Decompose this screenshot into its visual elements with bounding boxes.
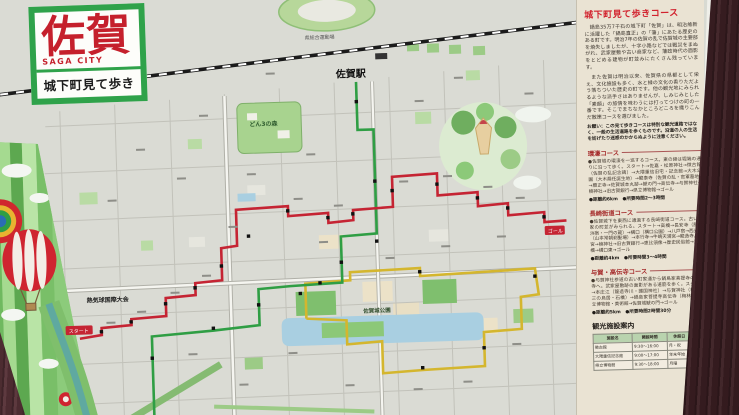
course-kango: 環濠コース ●佐賀城の環濠を一巡するコース。東の縁は堀端の通りに沿って歩く。スタ… xyxy=(588,146,702,202)
course-yoka-desc: ●与賀神社参道の古い町家通から鍋島家菩提寺の高伝寺へ。武家屋敷跡の面影がある道筋… xyxy=(591,276,704,308)
course-nagasaki-desc: ●佐賀城下を東西に通過する長崎街道コース。古い商家の町並がみられる。スタート→高… xyxy=(590,217,704,255)
intro-paragraph-1: 鍋島35万7千石の城下町「佐賀」は、明治維新に活躍した「鍋島直正」の「藩」にあた… xyxy=(584,22,698,71)
facility-table-title: 観光施設案内 xyxy=(592,319,704,332)
goal-label: ゴール xyxy=(548,228,563,235)
stadium-label: 県総合運動場 xyxy=(304,34,334,42)
station-label: 佐賀駅 xyxy=(335,67,367,81)
start-label: スタート xyxy=(69,327,89,335)
signboard-photo: 佐賀駅 県総合運動場 どん3の森 xyxy=(0,0,739,415)
start-tag: スタート xyxy=(66,325,93,335)
panel-heading: 城下町見て歩きコース xyxy=(584,5,697,21)
info-panel: 城下町見て歩きコース 鍋島35万7千石の城下町「佐賀」は、明治維新に活躍した「鍋… xyxy=(576,0,704,415)
balloon-event-label: 熱気球国際大会 xyxy=(87,295,130,304)
map-tagline: 城下町見て歩き xyxy=(37,66,142,95)
course-nagasaki-kaido: 長崎街道コース ●佐賀城下を東西に通過する長崎街道コース。古い商家の町並がみられ… xyxy=(589,206,703,262)
don3-forest-park: どん3の森 xyxy=(237,102,303,154)
rule-line xyxy=(636,210,702,213)
course-kango-name: 環濠コース xyxy=(588,148,619,158)
course-yoka-kodenji: 与賀・高伝寺コース ●与賀神社参道の古い町家通から鍋島家菩提寺の高伝寺へ。武家屋… xyxy=(591,265,704,315)
rule-line xyxy=(622,150,701,153)
don3-forest-label: どん3の森 xyxy=(249,119,278,128)
intro-paragraph-2: また佐賀は明治以来、佐賀県の県都として栄え、文化施設も多く、水と緑の文化の香りた… xyxy=(586,72,700,121)
station-building xyxy=(375,53,387,59)
course-nagasaki-name: 長崎街道コース xyxy=(589,208,633,218)
course-kango-desc: ●佐賀城の環濠を一巡するコース。東の縁は堀端の通りに沿って歩く。スタート→佐嘉・… xyxy=(588,157,702,195)
info-panel-content: 城下町見て歩きコース 鍋島35万7千石の城下町「佐賀」は、明治維新に活躍した「鍋… xyxy=(584,5,704,371)
facility-cell: 9:30～18:00 xyxy=(633,359,668,369)
title-box: 佐賀 SAGA CITY 城下町見て歩き xyxy=(28,3,147,105)
facility-cell: 県立博物館 xyxy=(594,360,633,370)
course-yoka-name: 与賀・高伝寺コース xyxy=(591,267,648,277)
city-title: 佐賀 xyxy=(41,12,137,61)
caution-note: お願い：この見て歩きコースは特別な観光道路ではなく、一般の生活道路を歩くものです… xyxy=(587,122,700,143)
goal-tag: ゴール xyxy=(545,225,565,235)
